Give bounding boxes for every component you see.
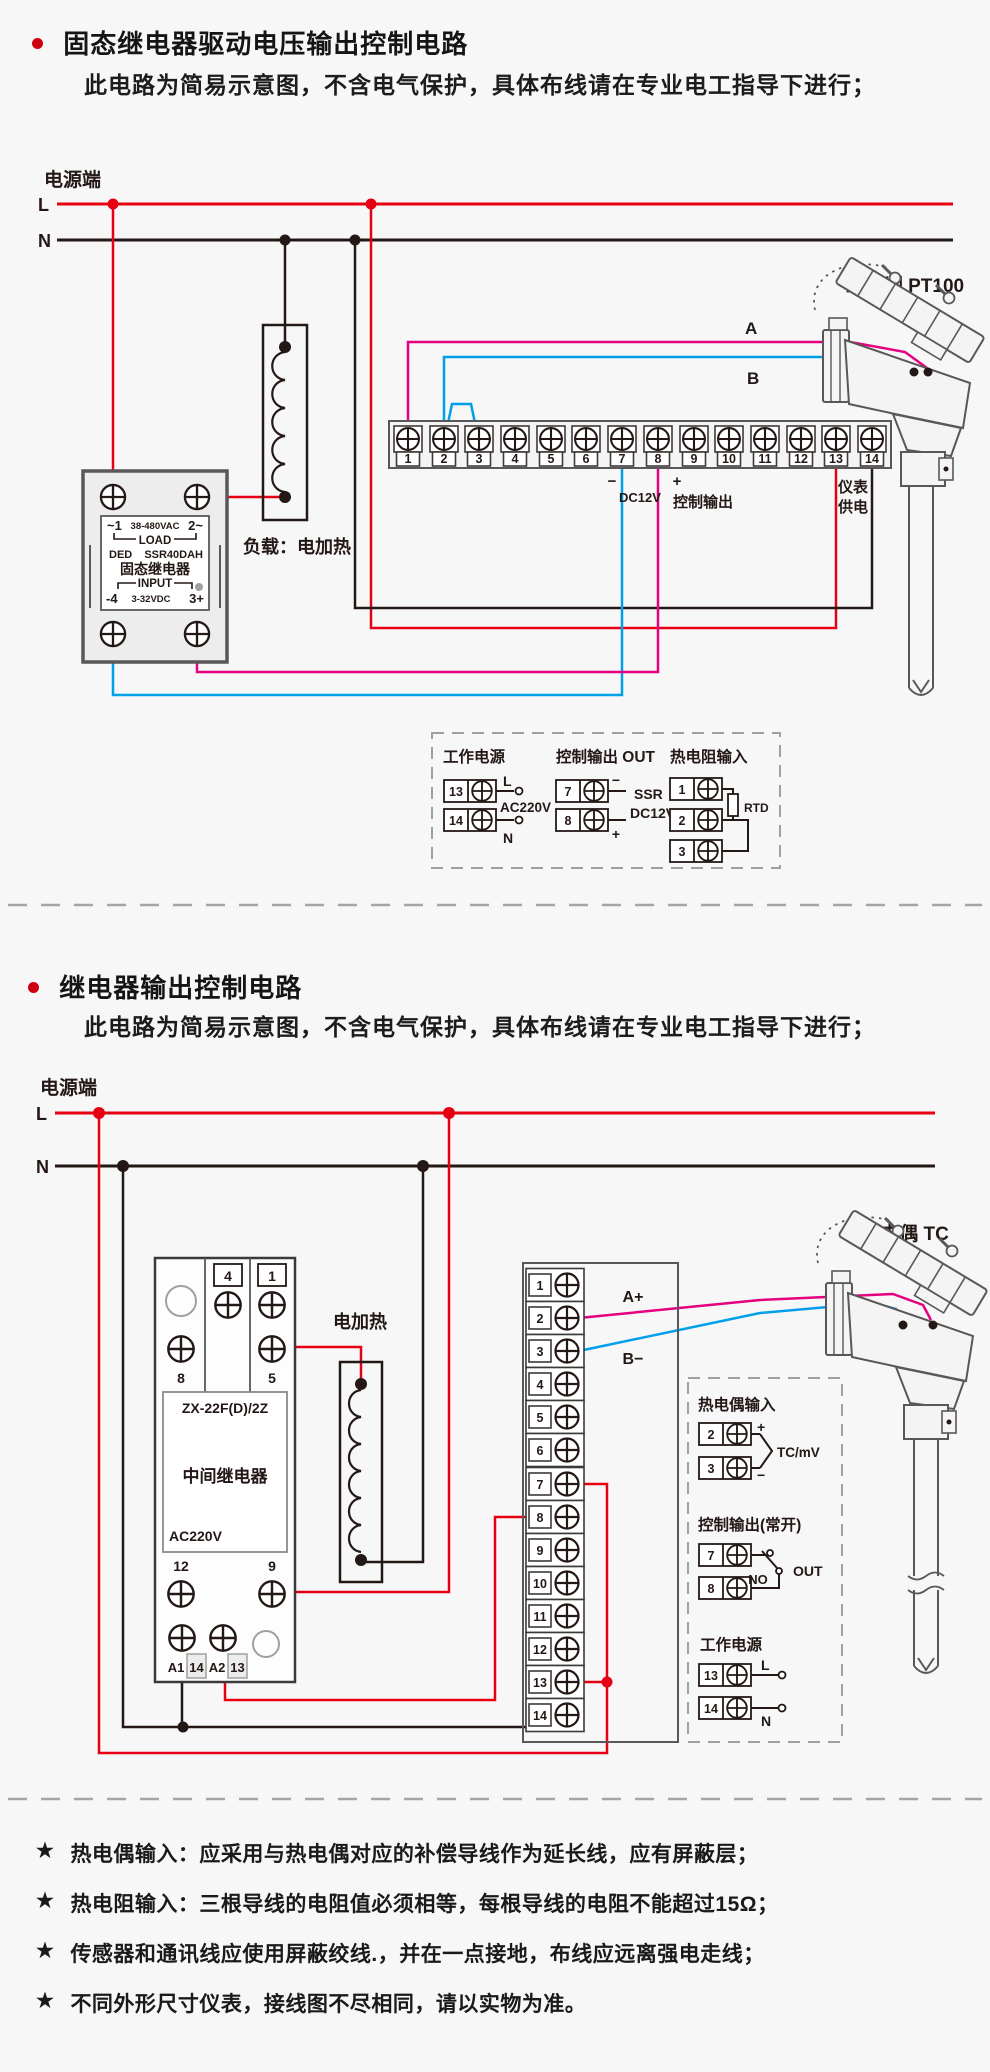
svg-text:3: 3 bbox=[679, 845, 686, 859]
svg-text:14: 14 bbox=[865, 452, 879, 466]
meter-power-label-2: 供电 bbox=[837, 498, 868, 516]
svg-text:L: L bbox=[761, 1657, 770, 1673]
terminal: 11 bbox=[526, 1600, 584, 1633]
terminal: 8 bbox=[644, 426, 672, 466]
legend-out-title: 控制输出 OUT bbox=[556, 747, 656, 766]
terminal: 4 bbox=[526, 1368, 584, 1401]
svg-text:5: 5 bbox=[537, 1411, 544, 1425]
terminal: 7 bbox=[526, 1468, 584, 1501]
power-terminal-label: 电源端 bbox=[44, 168, 101, 191]
section1-circuit: 电源端 L N 负载：电加热 ~1 38-480VAC 2~ LOAD DED bbox=[38, 168, 985, 868]
svg-text:8: 8 bbox=[655, 452, 662, 466]
svg-text:3: 3 bbox=[537, 1345, 544, 1359]
terminal: 14 bbox=[858, 426, 886, 466]
svg-text:12: 12 bbox=[533, 1643, 547, 1657]
svg-text:14: 14 bbox=[533, 1709, 547, 1723]
svg-text:2: 2 bbox=[537, 1312, 544, 1326]
line-l-label: L bbox=[38, 195, 49, 215]
control-output-label: 控制输出 bbox=[673, 493, 733, 511]
svg-text:3: 3 bbox=[476, 452, 483, 466]
legend-tc-title: 热电偶输入 bbox=[698, 1395, 776, 1414]
relay-t14: 14 bbox=[189, 1660, 204, 1675]
svg-text:−: − bbox=[612, 772, 620, 788]
svg-text:4: 4 bbox=[512, 452, 519, 466]
terminal: 6 bbox=[526, 1434, 584, 1467]
relay-t1: 1 bbox=[268, 1268, 276, 1284]
relay-t5: 5 bbox=[268, 1370, 276, 1386]
wiring-diagram: 电源端 L N 负载：电加热 ~1 38-480VAC 2~ LOAD DED bbox=[0, 0, 990, 2072]
svg-text:8: 8 bbox=[537, 1511, 544, 1525]
terminal: 13 bbox=[822, 426, 850, 466]
minus-label: − bbox=[608, 473, 617, 490]
svg-text:N: N bbox=[761, 1713, 771, 1729]
legend-rtd-label: RTD bbox=[744, 801, 769, 815]
b-minus-label: B− bbox=[623, 1351, 644, 1368]
ssr-input-label: INPUT bbox=[138, 578, 173, 590]
terminal: 2 bbox=[526, 1302, 584, 1335]
svg-text:1: 1 bbox=[679, 783, 686, 797]
relay-t12: 12 bbox=[173, 1558, 189, 1574]
svg-text:11: 11 bbox=[533, 1610, 546, 1624]
ssr-terminal-4 bbox=[101, 622, 125, 646]
svg-text:2: 2 bbox=[708, 1428, 715, 1442]
relay-t9: 9 bbox=[268, 1558, 276, 1574]
tc-sensor: 热电偶 TC bbox=[817, 1210, 988, 1673]
coil-symbol bbox=[272, 352, 285, 492]
legend-out: OUT bbox=[793, 1563, 823, 1579]
svg-text:5: 5 bbox=[548, 452, 555, 466]
svg-text:7: 7 bbox=[565, 785, 572, 799]
svg-text:14: 14 bbox=[704, 1702, 718, 1716]
relay-module: 4 1 8 5 ZX-22F(D)/2Z 中间继电器 AC220V 12 9 A… bbox=[155, 1258, 295, 1682]
sensor-probe bbox=[909, 486, 933, 695]
legend-ac220v: AC220V bbox=[500, 800, 551, 815]
wire-heater-to-n bbox=[361, 1166, 423, 1562]
relay-voltage: AC220V bbox=[169, 1528, 223, 1544]
pt100-sensor: 二线制 PT100 A B bbox=[745, 257, 985, 695]
relay-t13: 13 bbox=[230, 1660, 244, 1675]
terminal-strip-horizontal: 1 2 3 4 5 6 7 8 9 10 11 12 13 14 bbox=[389, 421, 891, 468]
svg-text:4: 4 bbox=[537, 1378, 544, 1392]
heater-label: 电加热 bbox=[333, 1311, 387, 1332]
legend-out2-title: 控制输出(常开) bbox=[698, 1515, 801, 1534]
svg-text:2: 2 bbox=[441, 452, 448, 466]
svg-text:+: + bbox=[612, 826, 620, 842]
ssr-t2m: 3-32VDC bbox=[131, 594, 170, 605]
ssr-module: ~1 38-480VAC 2~ LOAD DED SSR40DAH 固态继电器 … bbox=[83, 471, 227, 662]
relay-t4: 4 bbox=[224, 1268, 232, 1284]
svg-text:13: 13 bbox=[533, 1676, 547, 1690]
svg-text:1: 1 bbox=[405, 452, 412, 466]
terminal: 7 bbox=[608, 426, 636, 466]
svg-text:7: 7 bbox=[708, 1549, 715, 1563]
relay-name: 中间继电器 bbox=[183, 1466, 269, 1486]
relay-a2: A2 bbox=[209, 1660, 226, 1675]
svg-text:7: 7 bbox=[537, 1478, 544, 1492]
svg-text:10: 10 bbox=[722, 452, 736, 466]
wiring-manual-page: { "section1": { "title": "固态继电器驱动电压输出控制电… bbox=[0, 0, 990, 2072]
ssr-terminal-1 bbox=[101, 485, 125, 509]
svg-text:11: 11 bbox=[758, 452, 771, 466]
legend-box-1: 工作电源 13 14 L AC220V N 控制输出 OUT 7 8 − + S… bbox=[432, 733, 780, 868]
terminal: 5 bbox=[537, 426, 565, 466]
legend-power-title: 工作电源 bbox=[443, 747, 506, 766]
terminal: 11 bbox=[751, 426, 779, 466]
load-box bbox=[263, 325, 307, 520]
legend-n: N bbox=[503, 830, 513, 846]
ssr-t1l: ~1 bbox=[107, 518, 122, 533]
terminal: 2 bbox=[430, 426, 458, 466]
svg-text:7: 7 bbox=[619, 452, 626, 466]
ssr-model: SSR40DAH bbox=[144, 549, 203, 561]
svg-text:14: 14 bbox=[449, 814, 463, 828]
svg-text:6: 6 bbox=[583, 452, 590, 466]
svg-text:9: 9 bbox=[537, 1544, 544, 1558]
lead-a-label: A bbox=[745, 319, 757, 338]
svg-text:−: − bbox=[757, 1467, 765, 1483]
svg-text:13: 13 bbox=[704, 1669, 718, 1683]
terminal: 10 bbox=[526, 1567, 584, 1600]
terminal: 6 bbox=[572, 426, 600, 466]
svg-text:8: 8 bbox=[708, 1582, 715, 1596]
legend-l: L bbox=[503, 773, 512, 789]
legend-rtd-title: 热电阻输入 bbox=[670, 747, 748, 766]
legend-power2-title: 工作电源 bbox=[700, 1635, 763, 1654]
wire-ssr-control-plus bbox=[197, 454, 658, 672]
ssr-terminal-2 bbox=[185, 485, 209, 509]
svg-text:6: 6 bbox=[537, 1444, 544, 1458]
svg-text:2: 2 bbox=[679, 814, 686, 828]
svg-text:+: + bbox=[757, 1419, 765, 1435]
svg-text:13: 13 bbox=[829, 452, 843, 466]
terminal: 13 bbox=[526, 1666, 584, 1699]
svg-text:13: 13 bbox=[449, 785, 463, 799]
a-plus-label: A+ bbox=[623, 1289, 644, 1306]
ssr-brand: DED bbox=[109, 549, 132, 561]
relay-model: ZX-22F(D)/2Z bbox=[182, 1400, 269, 1416]
svg-text:12: 12 bbox=[794, 452, 808, 466]
relay-t8: 8 bbox=[177, 1370, 185, 1386]
ssr-t2l: -4 bbox=[106, 591, 118, 606]
legend-tcmv-label: TC/mV bbox=[777, 1445, 820, 1460]
ssr-t2r: 3+ bbox=[189, 591, 204, 606]
terminal: 3 bbox=[526, 1335, 584, 1368]
ssr-load-label: LOAD bbox=[139, 535, 172, 547]
lead-b-label: B bbox=[747, 369, 759, 388]
terminal: 12 bbox=[526, 1633, 584, 1666]
terminal: 1 bbox=[526, 1269, 584, 1302]
ssr-name: 固态继电器 bbox=[120, 561, 191, 577]
line-n-label: N bbox=[36, 1157, 49, 1177]
legend-ssr: SSR bbox=[634, 786, 663, 802]
sensor-probe bbox=[914, 1439, 938, 1673]
terminal: 9 bbox=[526, 1534, 584, 1567]
svg-text:1: 1 bbox=[537, 1279, 544, 1293]
line-l-label: L bbox=[36, 1104, 47, 1124]
relay-a1: A1 bbox=[168, 1660, 185, 1675]
ssr-t1m: 38-480VAC bbox=[131, 521, 180, 532]
meter-power-label-1: 仪表 bbox=[837, 478, 869, 496]
terminal: 12 bbox=[787, 426, 815, 466]
wire-meter-power-l bbox=[371, 204, 836, 628]
legend-dc12v: DC12V bbox=[630, 805, 676, 821]
terminal: 10 bbox=[715, 426, 743, 466]
power-terminal-label: 电源端 bbox=[40, 1076, 97, 1099]
ssr-terminal-3 bbox=[185, 622, 209, 646]
terminal: 14 bbox=[526, 1699, 584, 1732]
terminal: 1 bbox=[394, 426, 422, 466]
line-n-label: N bbox=[38, 231, 51, 251]
ssr-led bbox=[195, 583, 203, 591]
section2-circuit: 电源端 L N 电加热 4 1 8 5 ZX-22F( bbox=[36, 1076, 988, 1753]
ssr-t1r: 2~ bbox=[188, 518, 203, 533]
heater-load: 负载：电加热 bbox=[243, 325, 351, 557]
load-label: 负载：电加热 bbox=[243, 536, 351, 557]
dc12v-label: DC12V bbox=[619, 490, 661, 505]
legend-box-2: 热电偶输入 2 3 + − TC/mV 控制输出(常开) 7 8 NO OUT … bbox=[688, 1378, 842, 1742]
svg-text:10: 10 bbox=[533, 1577, 547, 1591]
terminal: 4 bbox=[501, 426, 529, 466]
svg-text:8: 8 bbox=[565, 814, 572, 828]
coil-symbol bbox=[349, 1390, 361, 1552]
terminal: 3 bbox=[465, 426, 493, 466]
terminal: 8 bbox=[526, 1501, 584, 1534]
plus-label: + bbox=[673, 473, 682, 490]
terminal: 5 bbox=[526, 1401, 584, 1434]
svg-text:9: 9 bbox=[691, 452, 698, 466]
legend-no: NO bbox=[748, 1572, 768, 1587]
svg-text:3: 3 bbox=[708, 1462, 715, 1476]
terminal: 9 bbox=[680, 426, 708, 466]
